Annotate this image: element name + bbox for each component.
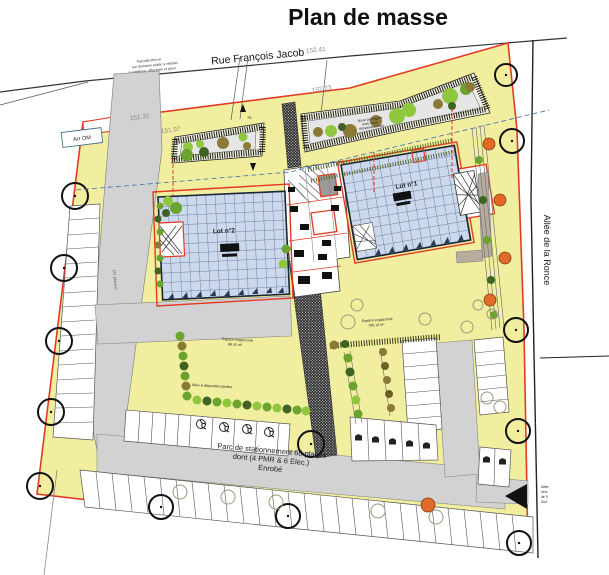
svg-text:98.42 m²: 98.42 m² — [228, 342, 243, 347]
svg-text:Plan de masse: Plan de masse — [288, 4, 448, 30]
svg-text:Allée de la Ronce: Allée de la Ronce — [542, 215, 552, 286]
svg-text:Allée: Allée — [541, 485, 549, 489]
svg-text:vers: vers — [541, 490, 548, 494]
svg-text:de l'I: de l'I — [541, 495, 548, 499]
svg-text:Sud: Sud — [541, 500, 547, 504]
svg-text:76: 76 — [247, 115, 252, 120]
svg-text:Lot n°2: Lot n°2 — [213, 226, 236, 235]
